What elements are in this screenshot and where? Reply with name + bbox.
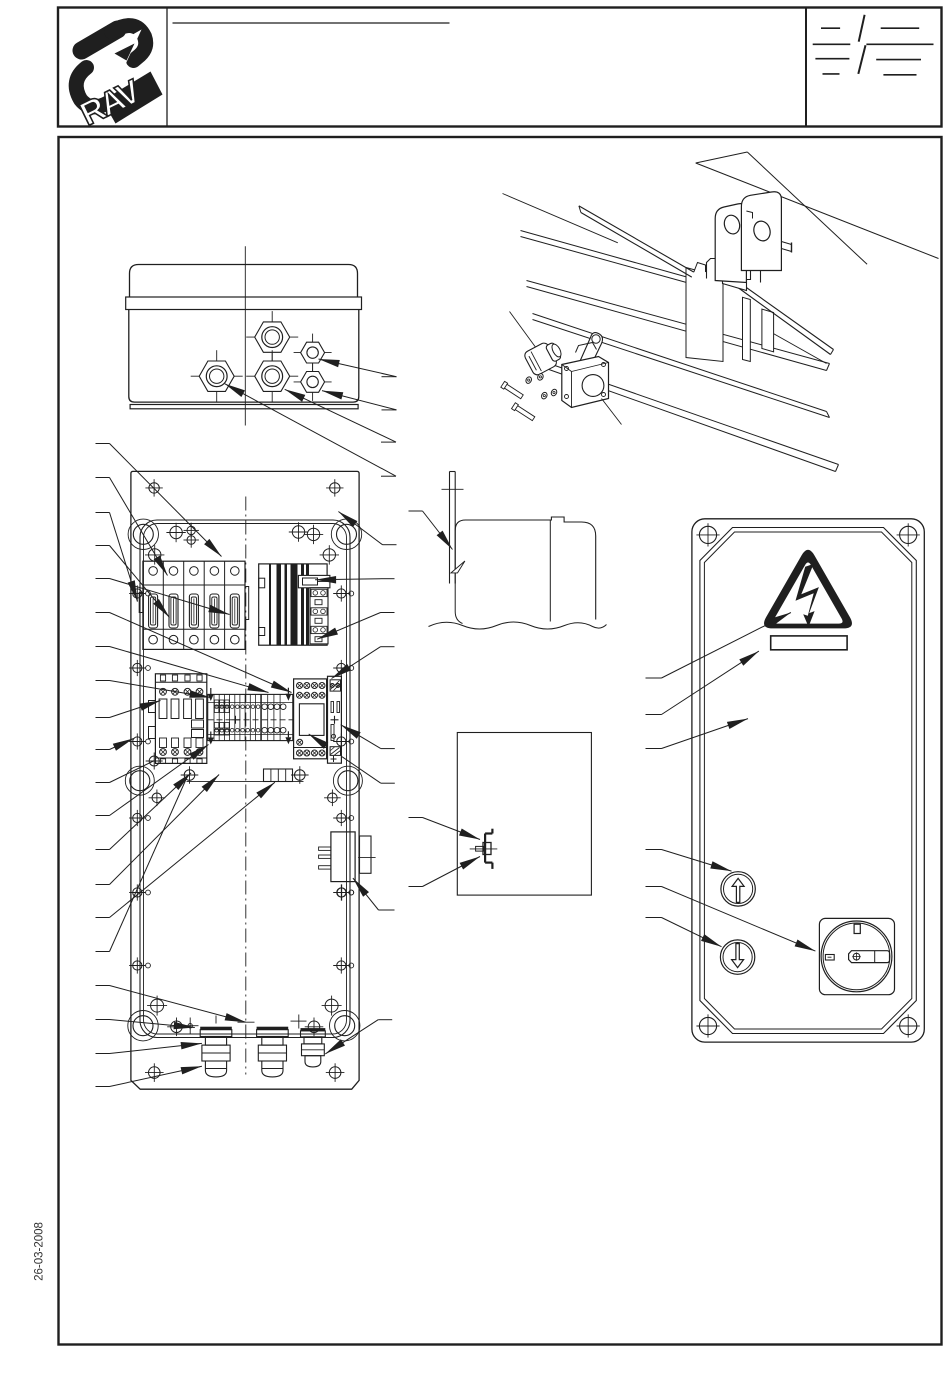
svg-text:26-03-2008: 26-03-2008 — [34, 1222, 46, 1281]
